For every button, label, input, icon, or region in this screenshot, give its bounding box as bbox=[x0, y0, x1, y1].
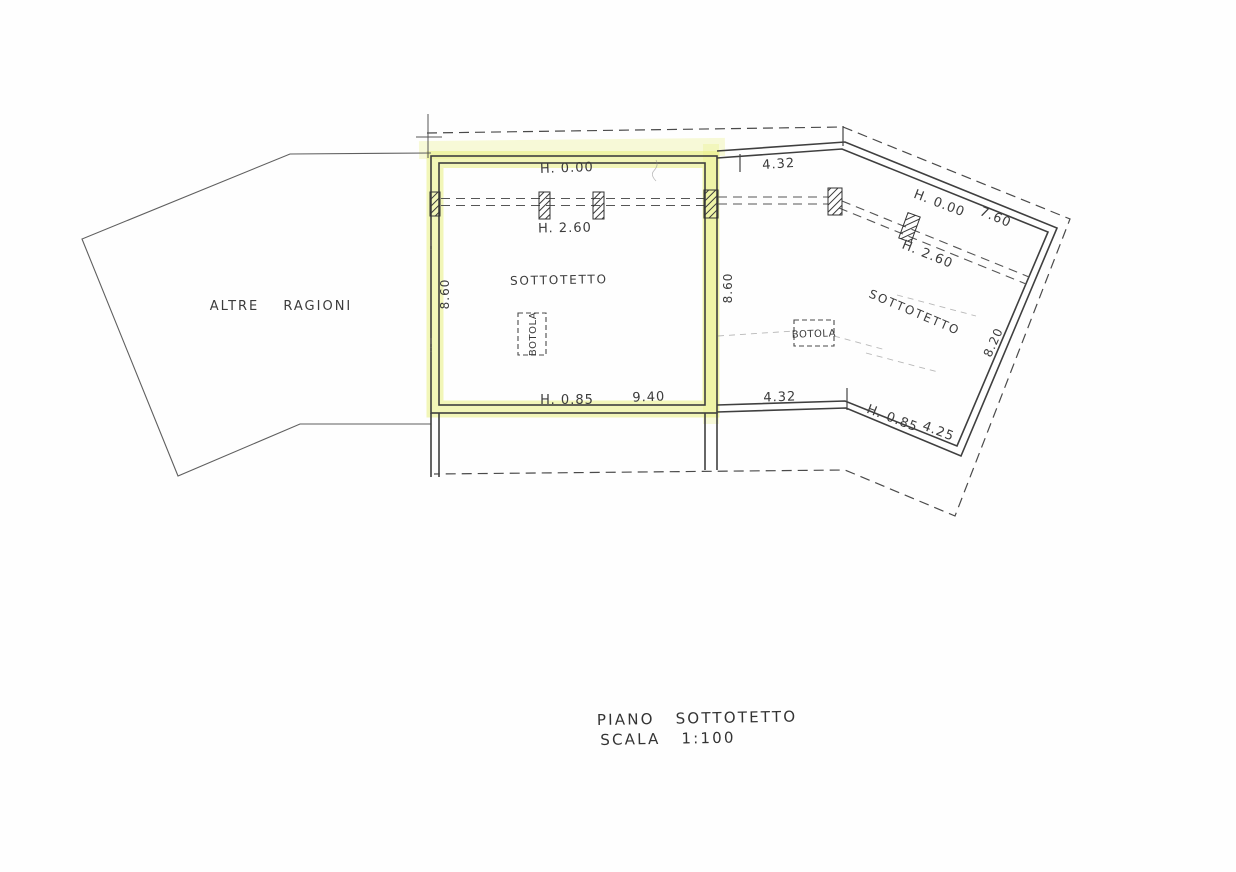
caption: PIANO SOTTOTETTO SCALA 1:100 bbox=[597, 708, 798, 749]
right-room-height-ridge-label: H. 0.00 bbox=[911, 187, 967, 220]
left-room-width-label: 9.40 bbox=[632, 389, 665, 405]
pencil-trace-2 bbox=[834, 336, 886, 350]
left-room-name-label: SOTTOTETTO bbox=[510, 272, 608, 288]
right-room-name-label: SOTTOTETTO bbox=[867, 287, 962, 338]
adjacent-parcel-label: ALTRE RAGIONI bbox=[210, 299, 353, 314]
left-room: BOTOLA H. 0.00 H. 2.60 SOTTOTETTO 8.60 H… bbox=[430, 156, 718, 477]
left-room-trapdoor-label: BOTOLA bbox=[528, 312, 539, 356]
left-room-height-eave-label: H. 0.85 bbox=[540, 393, 594, 408]
right-room-right-side-label: 8.20 bbox=[981, 325, 1006, 359]
floor-plan-drawing: ALTRE RAGIONI BOTOLA H. bbox=[0, 0, 1236, 872]
adjacent-parcel: ALTRE RAGIONI bbox=[82, 153, 431, 476]
adjacent-parcel-boundary bbox=[82, 153, 431, 476]
left-room-post-1 bbox=[539, 192, 550, 219]
left-room-depth-label: 8.60 bbox=[438, 279, 452, 310]
left-room-post-2 bbox=[593, 192, 604, 219]
left-wall-post-hatch bbox=[430, 192, 440, 216]
right-room-height-eave-label: H. 0.85 bbox=[864, 402, 920, 435]
left-room-highlight-top-overshoot bbox=[428, 147, 716, 150]
left-room-height-mid-label: H. 2.60 bbox=[538, 221, 592, 237]
right-room: BOTOLA 8.60 4.32 H. 0.00 7.60 H. 2.60 SO… bbox=[717, 126, 1057, 456]
caption-title: PIANO SOTTOTETTO bbox=[597, 708, 798, 729]
left-room-height-ridge-label: H. 0.00 bbox=[540, 160, 594, 177]
right-room-height-mid-label: H. 2.60 bbox=[900, 238, 955, 272]
pencil-trace-4 bbox=[866, 353, 938, 372]
pencil-trace-1 bbox=[718, 331, 794, 336]
right-room-trapdoor-label: BOTOLA bbox=[792, 328, 837, 341]
right-room-top-width-label: 4.32 bbox=[762, 156, 796, 173]
right-room-post-1 bbox=[828, 188, 842, 215]
divider-wall-post-hatch bbox=[704, 190, 718, 218]
right-room-bottom-width-label: 4.32 bbox=[763, 389, 796, 405]
caption-scale: SCALA 1:100 bbox=[600, 729, 736, 749]
right-room-post-2 bbox=[899, 213, 920, 243]
right-room-depth-left-label: 8.60 bbox=[721, 273, 735, 304]
scanned-floorplan-page: ALTRE RAGIONI BOTOLA H. bbox=[0, 0, 1236, 872]
